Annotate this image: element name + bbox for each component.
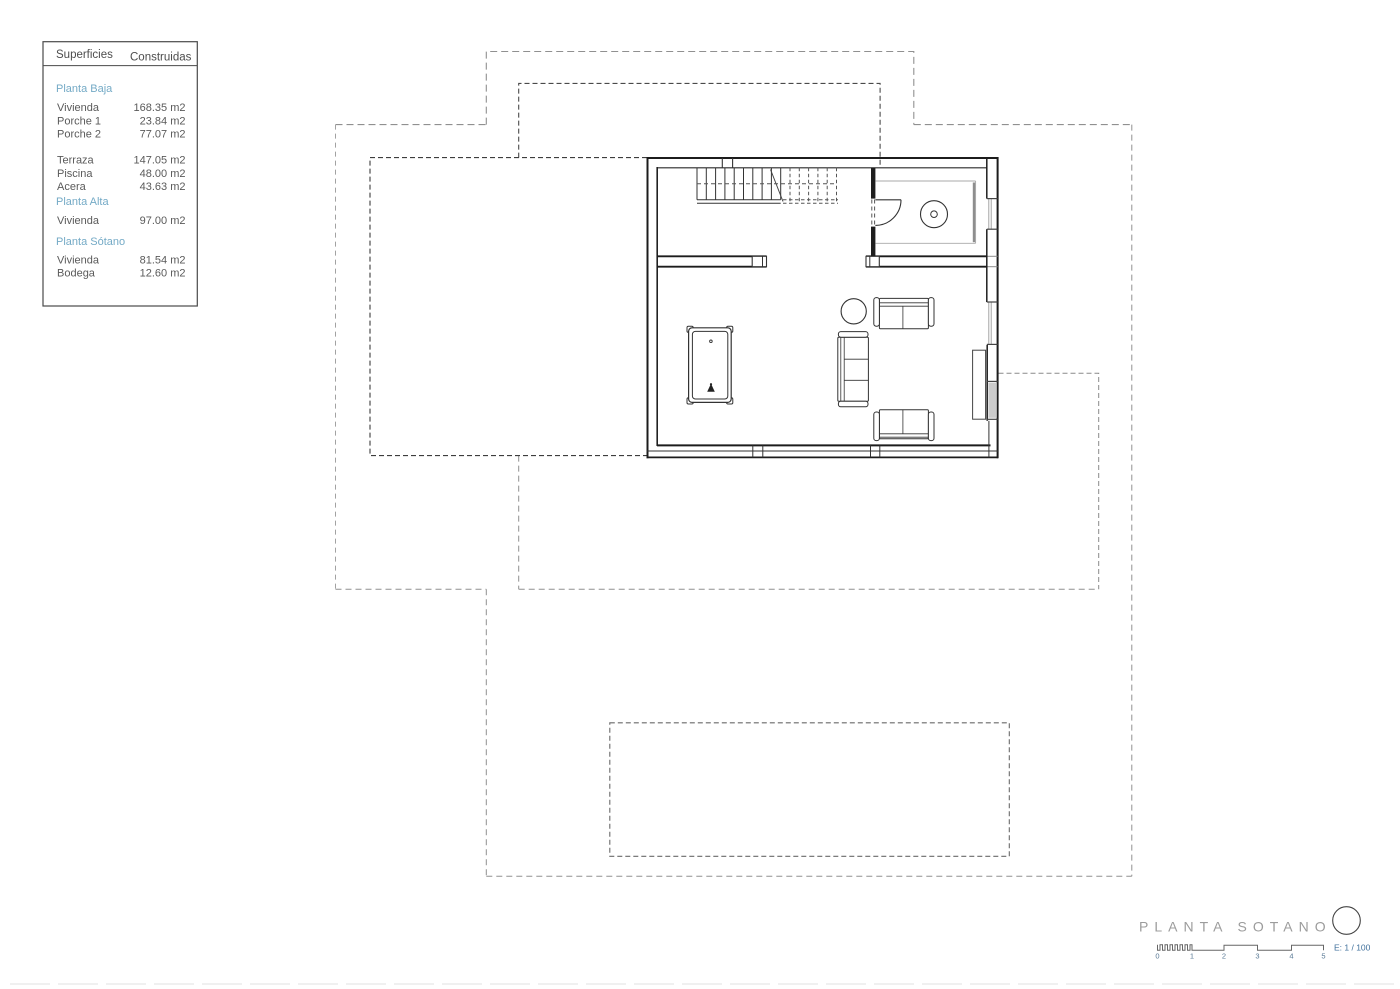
svg-text:12.60 m2: 12.60 m2: [140, 268, 186, 280]
svg-text:Superficies: Superficies: [56, 49, 113, 61]
svg-text:147.05 m2: 147.05 m2: [134, 155, 186, 167]
svg-text:PLANTA SOTANO: PLANTA SOTANO: [1139, 919, 1332, 935]
svg-text:48.00 m2: 48.00 m2: [140, 168, 186, 180]
svg-text:Porche 1: Porche 1: [57, 115, 101, 127]
svg-text:1: 1: [1190, 952, 1194, 961]
svg-text:168.35 m2: 168.35 m2: [134, 102, 186, 114]
svg-text:Piscina: Piscina: [57, 168, 93, 180]
svg-text:0: 0: [1155, 952, 1159, 961]
svg-text:Bodega: Bodega: [57, 268, 96, 280]
svg-text:Terraza: Terraza: [57, 155, 95, 167]
svg-text:2: 2: [1222, 952, 1226, 961]
svg-text:23.84 m2: 23.84 m2: [140, 115, 186, 127]
svg-text:43.63 m2: 43.63 m2: [140, 181, 186, 193]
svg-text:81.54 m2: 81.54 m2: [140, 254, 186, 266]
svg-text:97.00 m2: 97.00 m2: [140, 215, 186, 227]
svg-text:Vivienda: Vivienda: [57, 215, 100, 227]
svg-text:Planta Alta: Planta Alta: [56, 196, 109, 208]
svg-text:5: 5: [1321, 952, 1325, 961]
svg-text:Vivienda: Vivienda: [57, 254, 100, 266]
svg-text:4: 4: [1289, 952, 1293, 961]
svg-text:E: 1 / 100: E: 1 / 100: [1334, 943, 1371, 953]
svg-text:Porche 2: Porche 2: [57, 129, 101, 141]
svg-text:Planta Sótano: Planta Sótano: [56, 236, 125, 248]
svg-text:Planta Baja: Planta Baja: [56, 83, 113, 95]
svg-text:Construidas: Construidas: [130, 52, 192, 64]
svg-text:Acera: Acera: [57, 181, 87, 193]
svg-text:3: 3: [1255, 952, 1259, 961]
svg-text:77.07 m2: 77.07 m2: [140, 129, 186, 141]
svg-text:Vivienda: Vivienda: [57, 102, 100, 114]
